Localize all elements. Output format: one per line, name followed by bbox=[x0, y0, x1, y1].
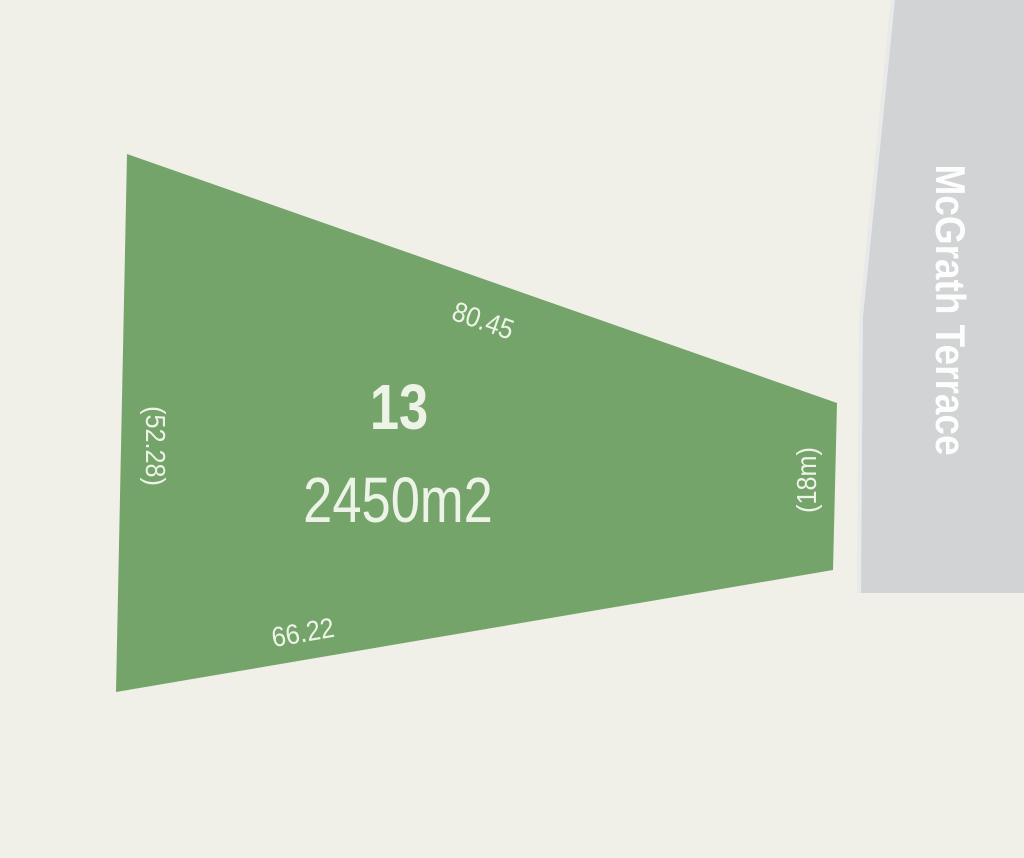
street-name: McGrath Terrace bbox=[929, 164, 971, 455]
lot-plan: 13 2450m2 80.45 66.22 (52.28) (18m) McGr… bbox=[0, 0, 1024, 858]
dimension-left: (52.28) bbox=[141, 406, 169, 486]
lot-number: 13 bbox=[370, 375, 428, 439]
lot-area: 2450m2 bbox=[303, 468, 493, 532]
dimension-right: (18m) bbox=[793, 447, 821, 513]
lot-13-boundary[interactable] bbox=[116, 154, 837, 692]
